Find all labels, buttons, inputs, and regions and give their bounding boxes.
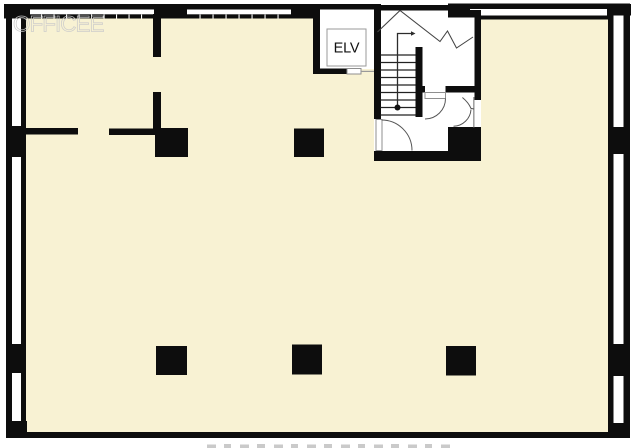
- svg-text:ELV: ELV: [334, 41, 360, 57]
- svg-text:OFFICEE: OFFICEE: [13, 12, 104, 37]
